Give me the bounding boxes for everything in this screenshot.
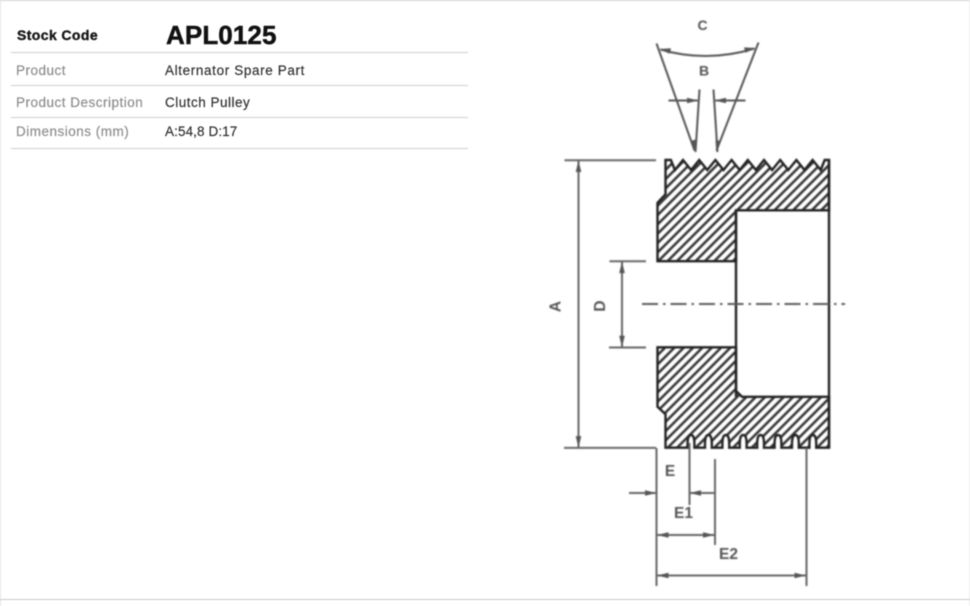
svg-text:A: A	[548, 301, 565, 312]
svg-text:E: E	[665, 463, 675, 480]
svg-text:E2: E2	[719, 546, 738, 563]
svg-text:C: C	[697, 17, 707, 33]
svg-text:E1: E1	[674, 505, 693, 522]
svg-text:D: D	[592, 300, 609, 311]
svg-text:B: B	[699, 63, 709, 79]
